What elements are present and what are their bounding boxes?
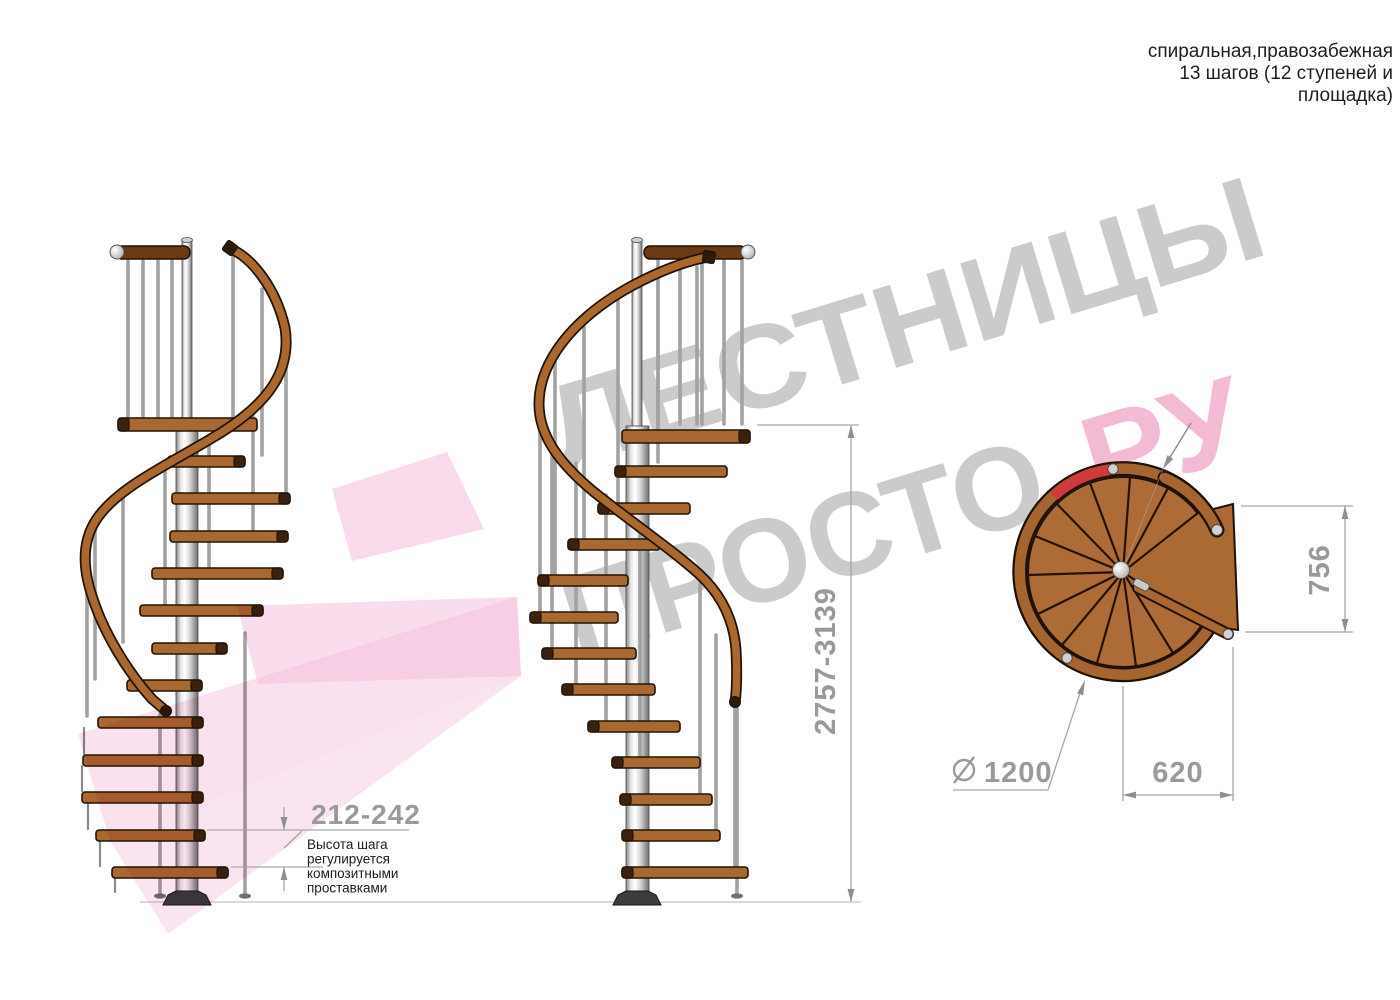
tread-cap [191,680,202,691]
note-line: проставками [307,881,387,896]
tread [562,684,655,695]
landing-balusters [128,261,172,417]
dimension-platform-depth: 756 [1241,506,1353,632]
platform-depth-value: 756 [1304,544,1336,595]
tread [588,721,680,732]
arrow-down [848,889,855,902]
pole-top-cap [182,237,193,242]
arrow-right [1220,792,1233,799]
rod-foot [731,893,743,898]
rod-foot [239,893,251,898]
dimension-diameter: 1200 [953,680,1085,790]
tread [568,539,660,550]
note-line: композитными [307,866,398,881]
rail-connector [1108,464,1118,474]
pole-base [613,891,661,905]
arrow-down [1342,619,1349,632]
diameter-value: 1200 [984,757,1053,789]
arrow-up [848,425,855,438]
tread [622,867,748,878]
tread [620,794,712,805]
pole-top-cap [632,237,643,242]
tread-cap [612,757,623,768]
tread [538,575,628,586]
tread-cap [118,418,129,431]
lower-handrail-cap [1223,629,1233,639]
leader-arrow-head [1077,680,1085,695]
spec-line: площадка) [1298,85,1393,106]
arrow-up [1342,506,1349,519]
tread-cap [234,456,245,467]
rail-end-ball [110,245,124,259]
tread-cap [739,430,750,443]
spec-line: спиральная,правозабежная [1148,41,1393,62]
tread-cap [279,493,290,504]
tread-cap [542,648,553,659]
tread [530,612,618,623]
tread-cap [216,643,227,654]
tread-cap [538,575,549,586]
tread-cap [622,867,633,878]
center-pole-hub [1113,562,1130,579]
tread [172,493,290,504]
rail-connector [1062,653,1072,663]
tread [615,466,727,477]
center-pole-upper [182,240,192,420]
platform-width-value: 620 [1152,757,1203,789]
landing-rail [116,246,190,259]
note-line: регулируется [307,852,390,867]
step-height-note: Высота шага регулируется композитными пр… [307,837,398,896]
tread [622,830,720,841]
spec-line: 13 шагов (12 ступеней и [1179,63,1393,84]
tread-cap [615,466,626,477]
tread [612,757,700,768]
spec-annotation: спиральная,правозабежная 13 шагов (12 ст… [1148,41,1393,106]
tread [152,568,283,579]
handrail-end-cap [730,697,741,708]
tread-cap [277,531,288,542]
rail-end-ball [741,245,755,259]
step-height-value: 212-242 [311,799,421,830]
total-height-value: 2757-3139 [810,587,842,735]
arrow-up [281,867,288,880]
note-line: Высота шага [307,837,388,852]
drawing-canvas: ЛЕСТНИЦЫ ПРОСТО .РУ [0,0,1400,1000]
tread-cap [530,612,541,623]
handrail-start-cap [702,250,716,264]
technical-drawing-page: ЛЕСТНИЦЫ ПРОСТО .РУ [0,0,1400,1000]
platform-tread [622,430,750,443]
tread-cap [568,539,579,550]
center-pole-upper [632,240,642,426]
arrow-left [1123,792,1136,799]
tread-cap [622,830,633,841]
tread-cap [620,794,631,805]
pink-arrow-facet [332,452,484,561]
ring-end-cap [1212,525,1223,536]
tread-cap [272,568,283,579]
tread-cap [562,684,573,695]
tread [542,648,636,659]
leader-line [1048,684,1083,790]
tread-cap [588,721,599,732]
tread [170,531,288,542]
